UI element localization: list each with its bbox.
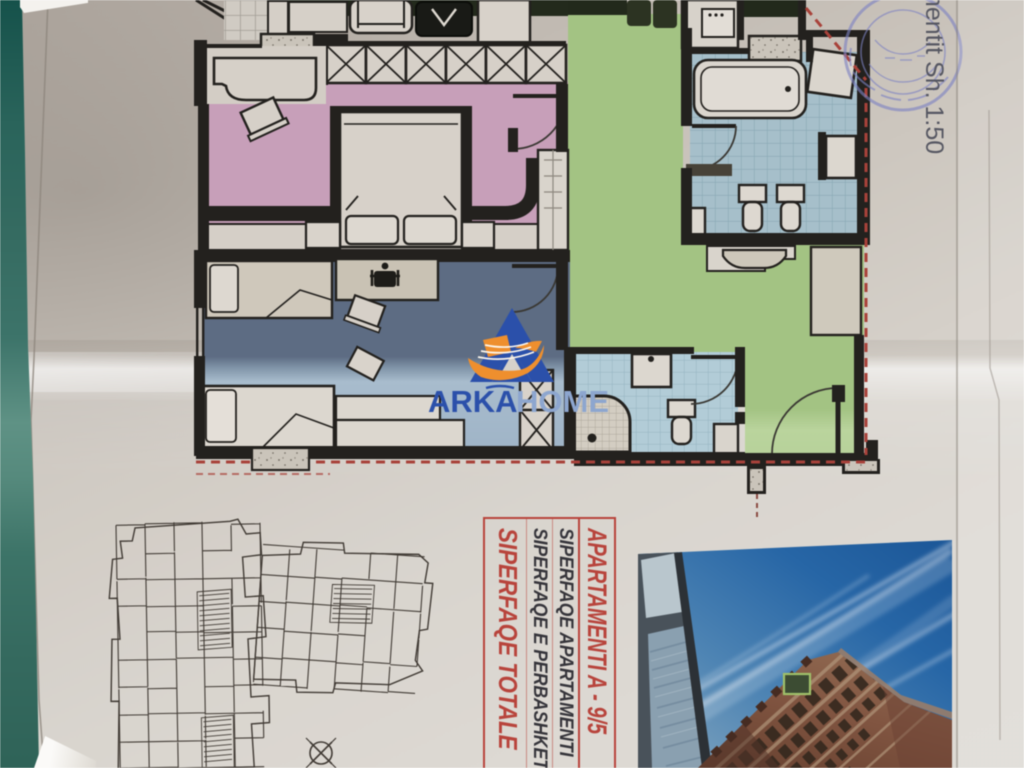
svg-text:ARKA: ARKA [428,384,518,419]
svg-text:HOME: HOME [516,384,609,419]
